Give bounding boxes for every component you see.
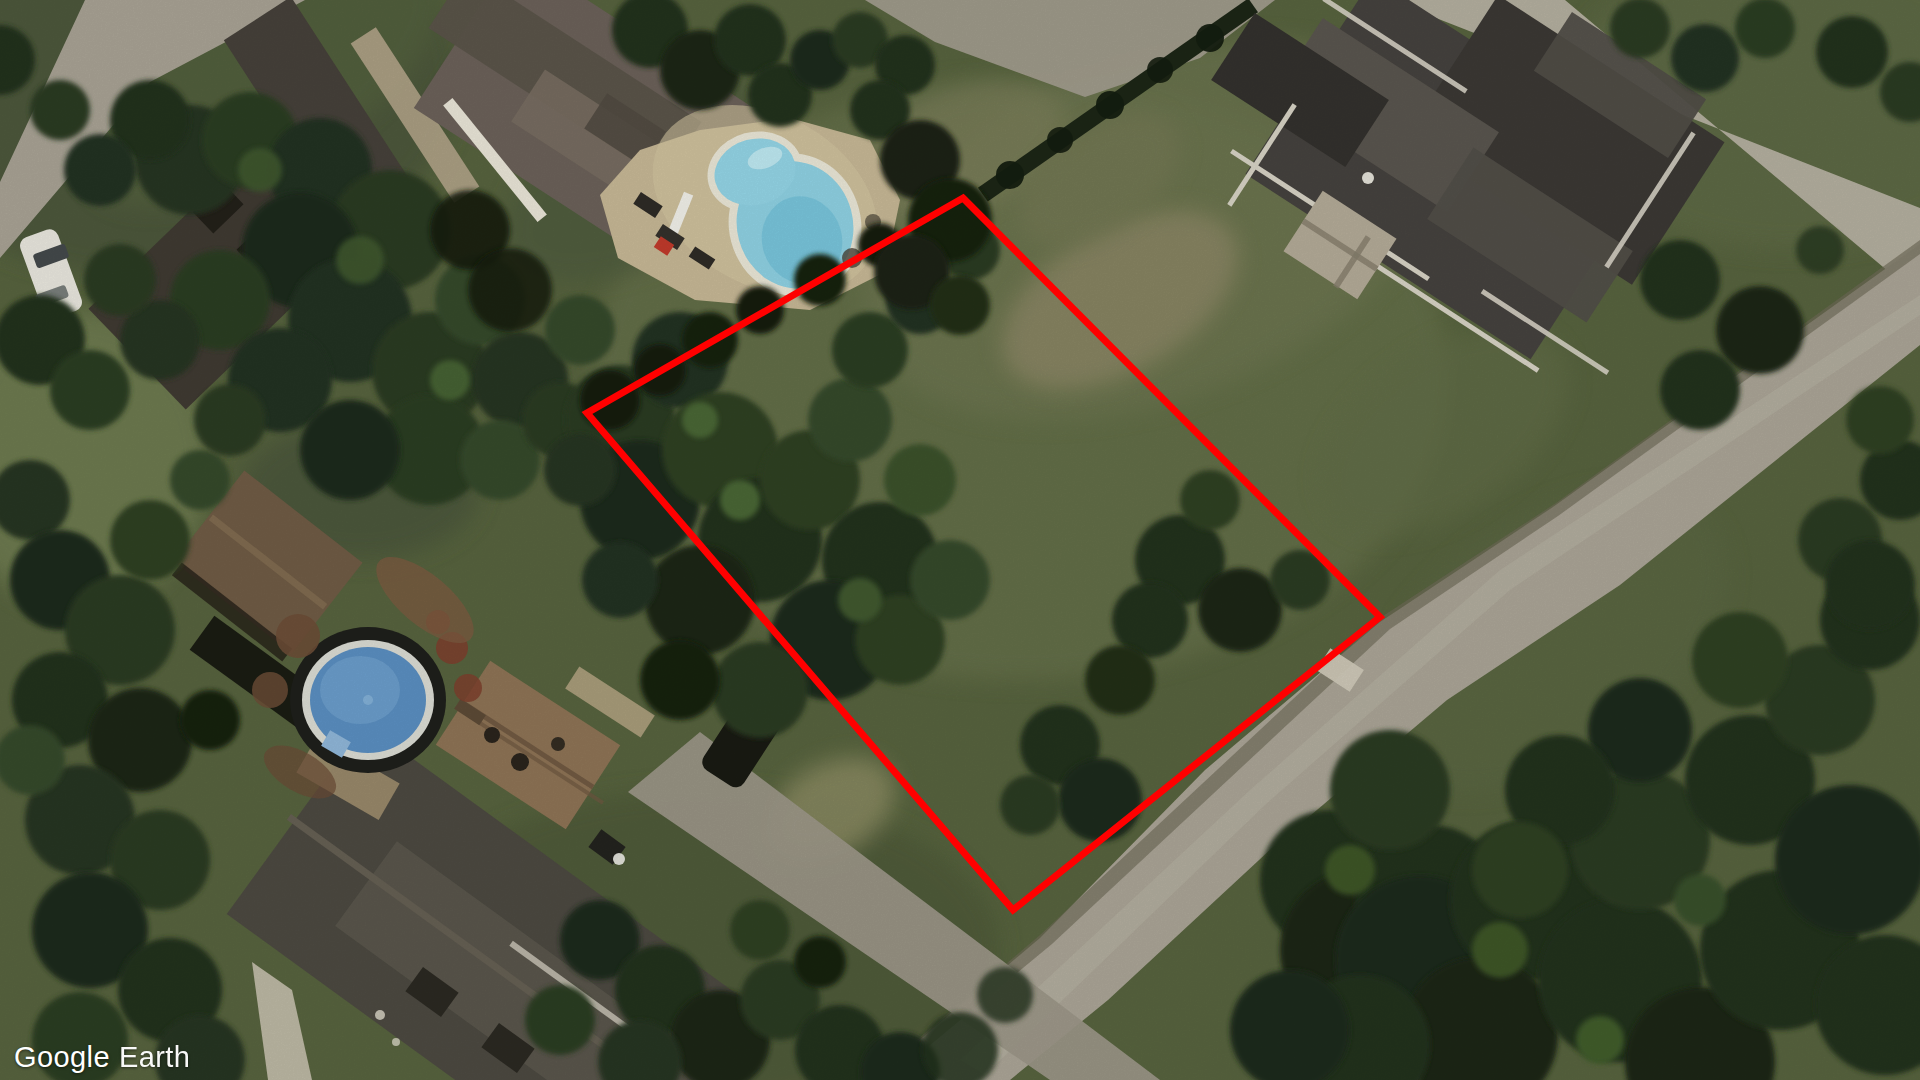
aerial-view-canvas[interactable]: GoogleEarth bbox=[0, 0, 1920, 1080]
watermark-brand: Google bbox=[14, 1041, 110, 1073]
google-earth-watermark: GoogleEarth bbox=[14, 1043, 190, 1072]
watermark-product: Earth bbox=[119, 1041, 190, 1073]
photo-grain bbox=[0, 0, 1920, 1080]
scene-svg bbox=[0, 0, 1920, 1080]
